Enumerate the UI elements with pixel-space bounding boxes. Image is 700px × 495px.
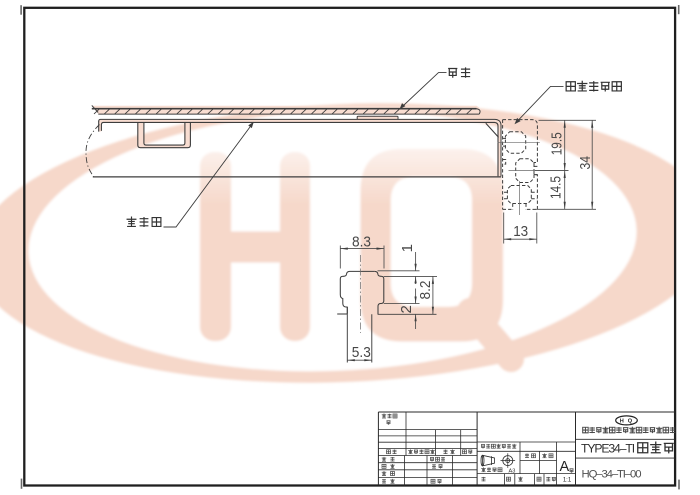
svg-text:8.2: 8.2 [417,281,434,300]
svg-text:A3: A3 [509,468,516,474]
svg-text:8.3: 8.3 [352,233,371,250]
svg-text:H Q: H Q [620,419,634,425]
svg-text:19.5: 19.5 [548,132,565,155]
svg-text:2: 2 [398,305,415,313]
svg-text:13: 13 [513,223,528,240]
svg-text:34: 34 [577,156,594,170]
svg-text:TYPE34–TI: TYPE34–TI [581,442,635,456]
svg-text:A: A [560,459,570,475]
svg-text:14.5: 14.5 [547,176,564,199]
svg-text:1:1: 1:1 [563,478,572,484]
svg-text:1: 1 [399,244,416,252]
svg-text:HQ–34–TI–00: HQ–34–TI–00 [582,468,642,480]
svg-text:5.3: 5.3 [352,344,371,361]
